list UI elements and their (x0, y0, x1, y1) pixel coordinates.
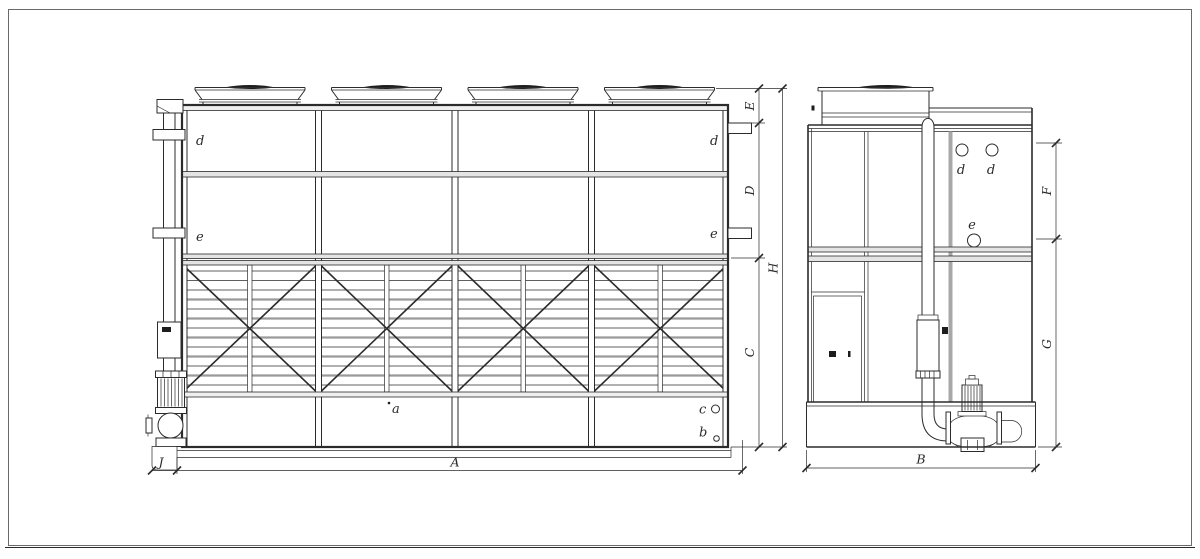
side-view: d d e (803, 85, 1063, 472)
pump-inlet-flange (946, 412, 951, 444)
side-label-d1: d (957, 163, 965, 178)
door-latch (848, 351, 851, 357)
front-connection-stubs (728, 123, 752, 239)
label-c: c (699, 403, 707, 418)
label-a: a (392, 402, 400, 417)
cowl-bolt (812, 106, 815, 111)
drawing-page: a c b d d e e J (0, 0, 1200, 559)
pump-base-front (156, 438, 186, 447)
front-base-curb (152, 447, 731, 471)
dim-D: D (742, 185, 757, 196)
dim-B: B (915, 452, 925, 467)
label-d-right: d (710, 134, 718, 149)
label-e-left: e (196, 230, 204, 245)
cooling-tower-drawing: a c b d d e e J (0, 0, 1200, 559)
side-casing-fill (808, 125, 1032, 447)
dim-H: H (766, 261, 781, 274)
fan-cowl (332, 85, 442, 105)
panel-latch (942, 327, 948, 334)
fan-cowl (605, 85, 715, 105)
door-handle (829, 351, 836, 357)
riser-flange-upper (153, 130, 185, 141)
side-panel-edge (949, 132, 953, 403)
dim-G: G (1039, 339, 1054, 349)
front-view: a c b d d e e J (146, 85, 787, 475)
pump-outlet-flange (146, 418, 152, 433)
front-fan-cowls (195, 85, 715, 105)
stub-d (728, 123, 752, 134)
dim-C: C (742, 347, 757, 357)
fan-cowl (468, 85, 578, 105)
riser-flange-lower (153, 228, 185, 238)
pump-suction-flange (997, 412, 1002, 444)
dim-F: F (1039, 185, 1054, 196)
label-e-right: e (710, 227, 718, 242)
side-fan-cowl (812, 85, 934, 125)
pump-motor-front (158, 378, 185, 408)
label-b: b (699, 426, 707, 441)
pump-support (961, 438, 984, 452)
label-d-left: d (196, 134, 204, 149)
stub-e (728, 228, 752, 239)
side-deck-band (808, 108, 1032, 129)
dim-E: E (742, 101, 757, 111)
side-label-e: e (968, 218, 976, 233)
side-label-d2: d (987, 163, 995, 178)
dim-A: A (449, 455, 459, 470)
riser-elbow-cap (157, 100, 183, 114)
pump-volute-front (158, 413, 183, 438)
fan-cowl (195, 85, 305, 105)
front-riser-and-pump (146, 100, 187, 447)
